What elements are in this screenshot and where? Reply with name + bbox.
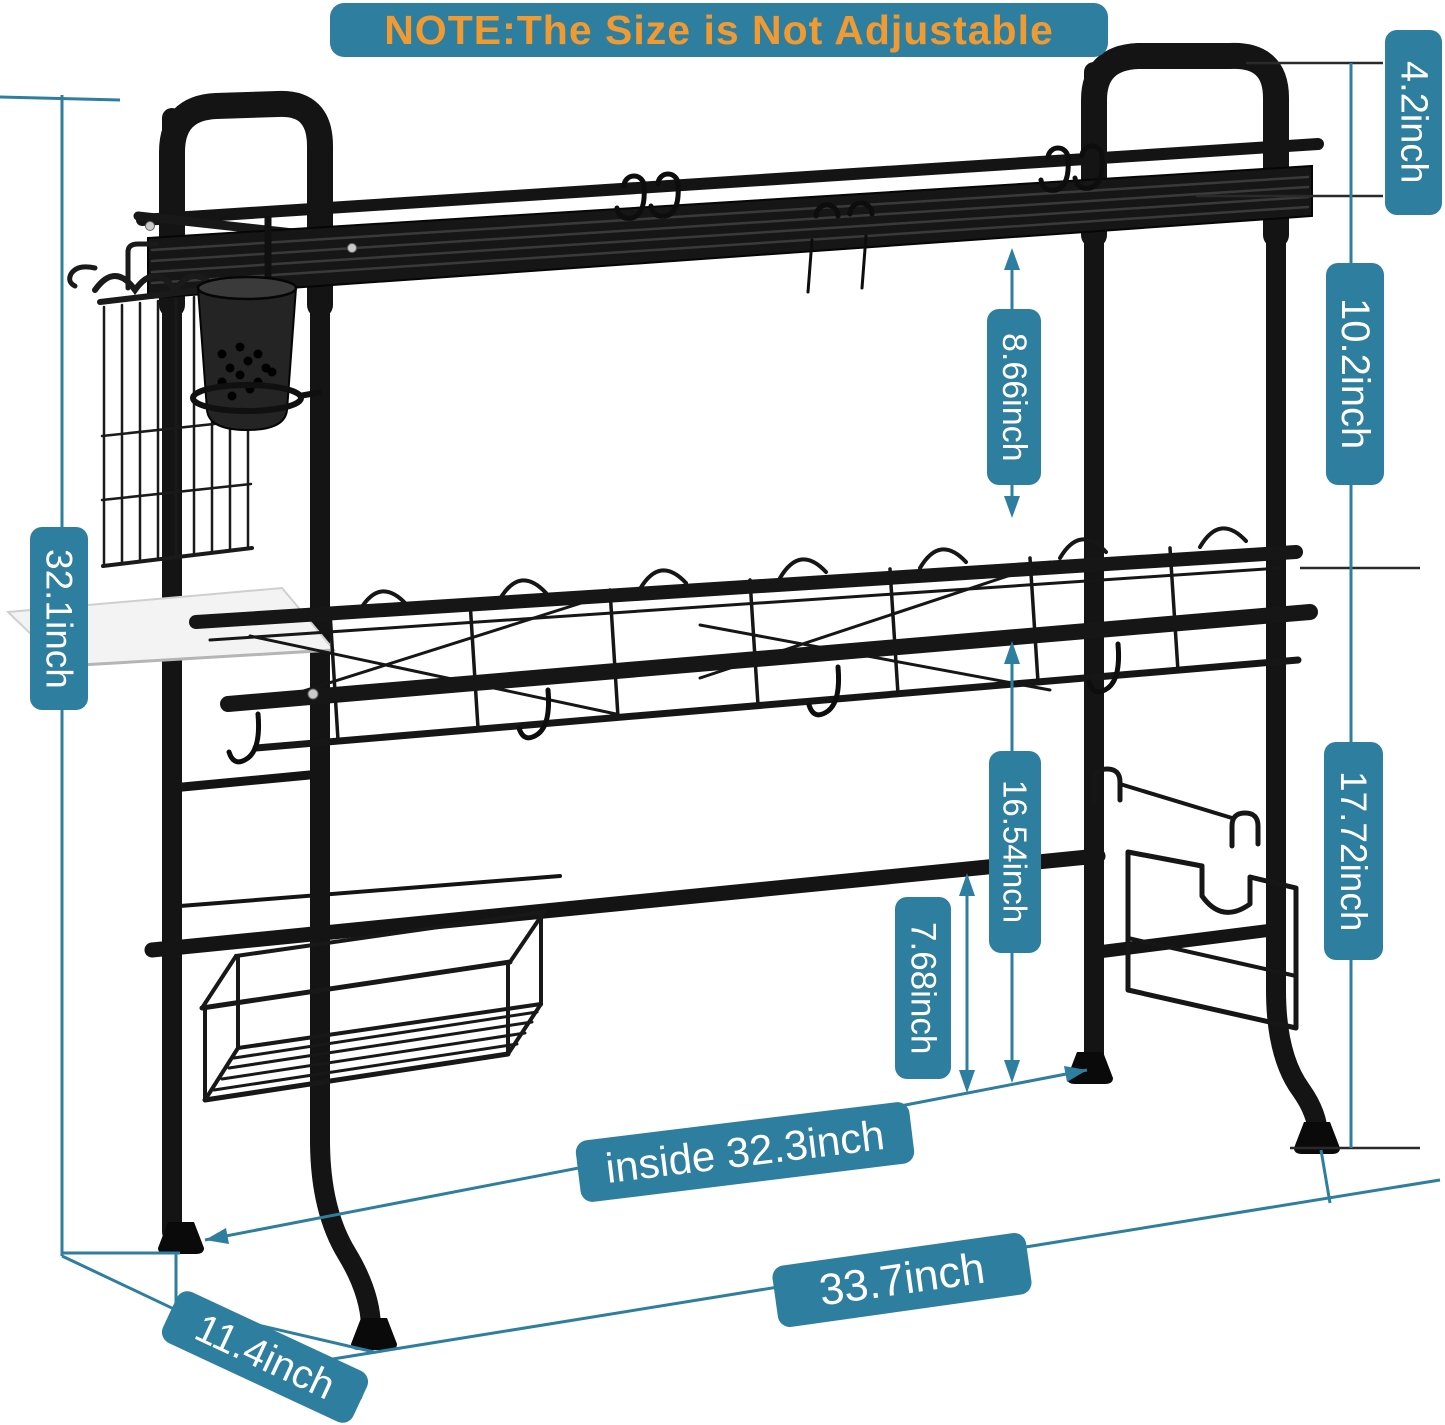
middle-bottom-rail — [256, 660, 1298, 748]
screw — [146, 222, 155, 231]
dish-rack-illustration — [0, 0, 1445, 1425]
foot-front-left — [351, 1318, 397, 1350]
cup-ring-arm — [299, 392, 322, 396]
board-holder — [1094, 769, 1296, 1028]
product-dimension-diagram: NOTE:The Size is Not Adjustable 4.2inch … — [0, 0, 1445, 1425]
holder-hook — [1232, 813, 1258, 846]
dim-label-handle-height: 4.2inch — [1385, 30, 1442, 215]
support-wire — [180, 876, 560, 906]
basket-verticals — [330, 548, 1178, 740]
basket-left-hook — [70, 267, 95, 286]
screw — [348, 244, 357, 253]
bottom-basket-slats — [214, 1012, 537, 1090]
dim-label-bar-to-counter: 7.68inch — [895, 897, 951, 1079]
dim-label-overall-height: 32.1inch — [30, 527, 88, 710]
left-rung — [172, 774, 320, 788]
screw — [308, 689, 318, 699]
note-banner: NOTE:The Size is Not Adjustable — [330, 3, 1108, 57]
dim-label-middle-height-right: 17.72inch — [1324, 742, 1383, 960]
front-left-leg — [320, 140, 371, 1326]
long-cross-bar — [152, 856, 1098, 950]
right-rung — [1098, 930, 1272, 952]
dim-label-top-to-middle: 8.66inch — [987, 309, 1041, 485]
middle-dish-basket — [196, 528, 1310, 761]
dim-label-top-to-middle-right: 10.2inch — [1326, 263, 1384, 485]
cup-rim — [198, 277, 296, 299]
middle-front-rail — [228, 612, 1310, 704]
dim-label-middle-to-counter: 16.54inch — [989, 751, 1041, 953]
